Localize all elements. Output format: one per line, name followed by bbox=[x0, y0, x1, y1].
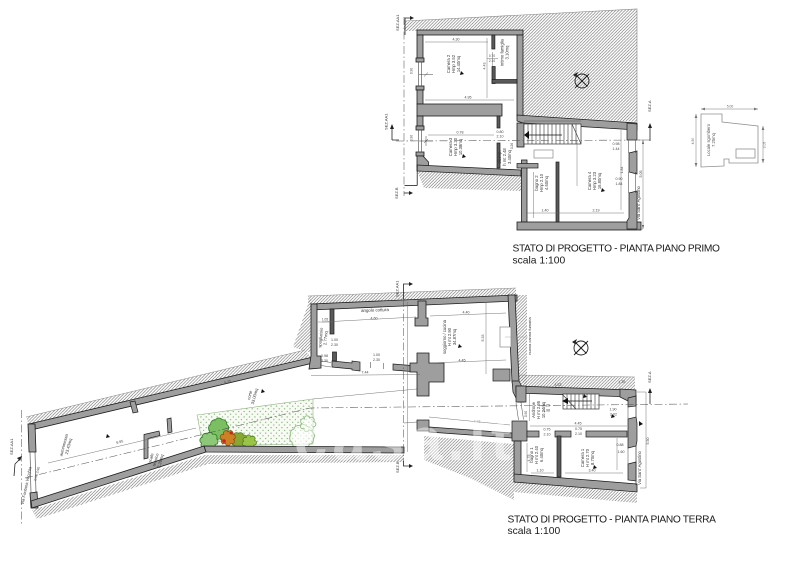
svg-text:1.05: 1.05 bbox=[322, 318, 328, 322]
svg-text:0.90: 0.90 bbox=[524, 411, 528, 417]
svg-text:SEZ.AA1: SEZ.AA1 bbox=[9, 438, 14, 455]
svg-text:7.25mq: 7.25mq bbox=[711, 132, 716, 147]
svg-text:7.44: 7.44 bbox=[362, 371, 369, 375]
svg-text:3.05: 3.05 bbox=[763, 142, 767, 149]
svg-text:0.88: 0.88 bbox=[617, 443, 624, 447]
svg-text:3.53: 3.53 bbox=[554, 383, 561, 387]
svg-text:scala 1:100: scala 1:100 bbox=[513, 256, 566, 267]
svg-text:0.90: 0.90 bbox=[410, 135, 414, 141]
svg-text:1.84: 1.84 bbox=[616, 182, 623, 186]
svg-text:Via Sant' Agostino: Via Sant' Agostino bbox=[636, 185, 641, 219]
svg-text:34.87mq: 34.87mq bbox=[452, 328, 457, 345]
svg-text:2.30: 2.30 bbox=[321, 359, 328, 363]
svg-text:1.35: 1.35 bbox=[618, 380, 625, 384]
svg-text:4.43: 4.43 bbox=[483, 63, 487, 70]
svg-text:0.98: 0.98 bbox=[613, 142, 620, 146]
svg-text:STATO DI PROGETTO - PIANTA PIA: STATO DI PROGETTO - PIANTA PIANO TERRA bbox=[508, 515, 717, 526]
svg-text:0.78: 0.78 bbox=[457, 131, 464, 135]
svg-text:1.90: 1.90 bbox=[610, 408, 617, 412]
svg-text:STATO DI PROGETTO - PIANTA PIA: STATO DI PROGETTO - PIANTA PIANO PRIMO bbox=[513, 244, 721, 255]
svg-text:SEZ.AA1: SEZ.AA1 bbox=[395, 14, 400, 31]
svg-text:0.98: 0.98 bbox=[321, 354, 328, 358]
svg-text:0.26: 0.26 bbox=[510, 143, 514, 149]
svg-text:5.00: 5.00 bbox=[727, 105, 734, 109]
svg-text:4.95: 4.95 bbox=[465, 96, 472, 100]
svg-text:1.44: 1.44 bbox=[613, 147, 620, 151]
svg-text:4.45: 4.45 bbox=[575, 422, 582, 426]
svg-text:0.75: 0.75 bbox=[544, 428, 551, 432]
svg-text:4.60mq: 4.60mq bbox=[544, 175, 549, 190]
svg-text:0.90: 0.90 bbox=[616, 177, 623, 181]
svg-text:2.10: 2.10 bbox=[575, 432, 582, 436]
svg-text:2.19: 2.19 bbox=[593, 209, 600, 213]
svg-text:4.90: 4.90 bbox=[691, 138, 695, 145]
svg-text:3.40mq: 3.40mq bbox=[507, 149, 512, 164]
svg-text:0.70: 0.70 bbox=[489, 54, 495, 58]
svg-text:3.10mq: 3.10mq bbox=[505, 45, 510, 60]
svg-text:8.70mq: 8.70mq bbox=[590, 450, 595, 465]
svg-text:4.40: 4.40 bbox=[463, 311, 470, 315]
svg-text:16.80mq: 16.80mq bbox=[597, 172, 602, 189]
svg-text:casa.it: casa.it bbox=[294, 406, 516, 473]
svg-text:4.60: 4.60 bbox=[371, 317, 378, 321]
svg-text:1.00: 1.00 bbox=[373, 353, 380, 357]
svg-text:Via Sant' Agostino: Via Sant' Agostino bbox=[637, 450, 642, 484]
svg-text:nuova canna fumaria: nuova canna fumaria bbox=[527, 317, 532, 355]
svg-text:angolo cottura: angolo cottura bbox=[361, 307, 390, 313]
svg-text:4.30: 4.30 bbox=[453, 38, 460, 42]
svg-text:2.10: 2.10 bbox=[544, 433, 551, 437]
svg-text:0.90: 0.90 bbox=[410, 68, 414, 74]
svg-text:1.10: 1.10 bbox=[537, 469, 544, 473]
svg-text:5.05: 5.05 bbox=[639, 171, 643, 178]
svg-text:4.45: 4.45 bbox=[459, 359, 466, 363]
svg-text:0.75: 0.75 bbox=[575, 427, 582, 431]
svg-text:scala 1:100: scala 1:100 bbox=[508, 526, 561, 537]
svg-text:2.30: 2.30 bbox=[331, 343, 338, 347]
svg-text:10.38mq: 10.38mq bbox=[458, 138, 463, 155]
svg-text:5.50: 5.50 bbox=[646, 438, 650, 445]
svg-text:6.40mq: 6.40mq bbox=[539, 447, 544, 462]
svg-text:0.80: 0.80 bbox=[497, 130, 504, 134]
svg-text:SEZ.A: SEZ.A bbox=[647, 371, 652, 383]
svg-text:1.00: 1.00 bbox=[331, 338, 338, 342]
svg-text:SEZ.B: SEZ.B bbox=[394, 187, 399, 199]
svg-text:2.30: 2.30 bbox=[373, 358, 380, 362]
svg-text:SEZ.AA1: SEZ.AA1 bbox=[384, 113, 389, 130]
svg-text:10.24mq: 10.24mq bbox=[541, 401, 546, 418]
svg-text:SEZ.AA1: SEZ.AA1 bbox=[395, 280, 400, 297]
svg-text:1.60: 1.60 bbox=[618, 450, 625, 454]
svg-text:1.40: 1.40 bbox=[542, 209, 549, 213]
svg-text:14.40mq: 14.40mq bbox=[456, 55, 461, 72]
svg-text:2.10: 2.10 bbox=[497, 135, 504, 139]
svg-text:1.84: 1.84 bbox=[620, 167, 624, 174]
svg-text:3.40: 3.40 bbox=[589, 469, 596, 473]
svg-text:2.10: 2.10 bbox=[489, 59, 495, 63]
svg-text:SEZ.A: SEZ.A bbox=[647, 100, 652, 112]
svg-text:5.33: 5.33 bbox=[481, 335, 485, 342]
